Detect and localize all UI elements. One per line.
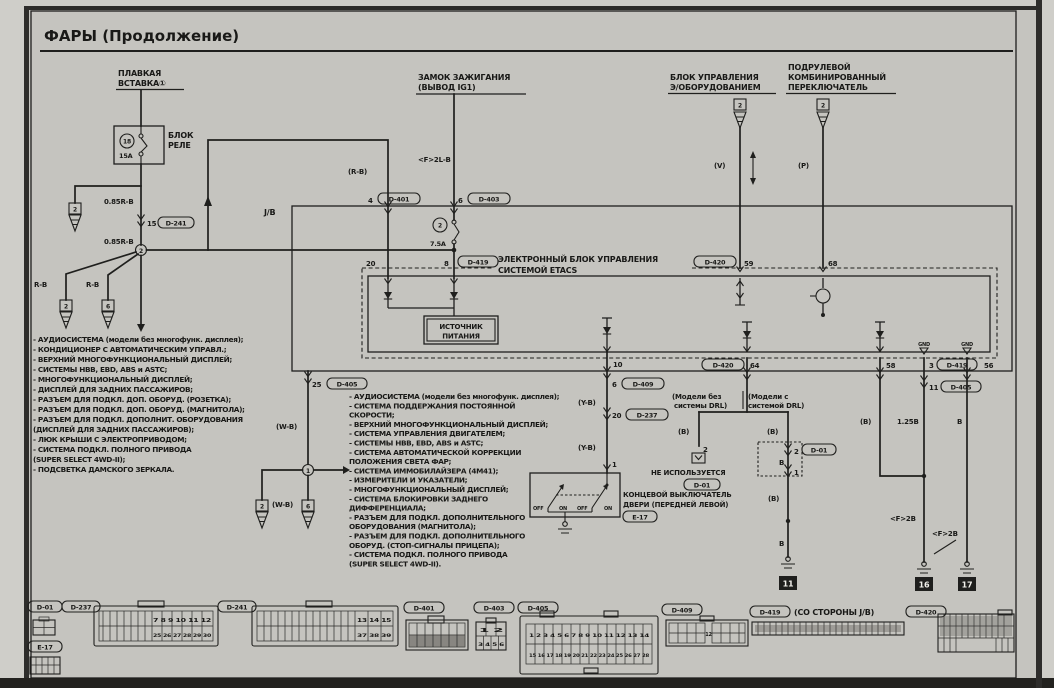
list-item: - СИСТЕМА БЛОКИРОВКИ ЗАДНЕГО	[349, 494, 488, 503]
pin-6: 6	[458, 197, 463, 205]
column-switch-pin-square: 2	[821, 103, 825, 110]
pin-64: 64	[750, 362, 760, 370]
svg-text:2: 2	[260, 504, 264, 511]
pin-25: 25	[312, 381, 322, 389]
wire-label-125b: 1.25B	[897, 418, 919, 426]
pin-68: 68	[828, 260, 838, 268]
gnd-label-1: GND	[918, 342, 930, 348]
svg-text:D-01: D-01	[37, 604, 54, 612]
list-item: - РАЗЪЕМ ДЛЯ ПОДКЛ. ДОПОЛНИТЕЛЬНОГО	[349, 532, 525, 541]
list-item: - СИСТЕМА ПОДДЕРЖАНИЯ ПОСТОЯННОЙ	[349, 401, 515, 410]
pin-8: 8	[444, 260, 449, 268]
svg-text:D-405: D-405	[337, 381, 358, 389]
fusible-link-label-2: ВСТАВКА①	[118, 79, 166, 88]
svg-text:D-420: D-420	[713, 362, 734, 370]
list-item: - СИСТЕМА ПОДКЛ. ПОЛНОГО ПРИВОДА	[349, 550, 508, 559]
relay-box-label-1: БЛОК	[168, 131, 194, 140]
power-source-label-1: ИСТОЧНИК	[439, 323, 483, 331]
pin-row: 12	[705, 632, 712, 638]
list-item: - ВЕРХНИЙ МНОГОФУНКЦИОНАЛЬНЫЙ ДИСПЛЕЙ;	[33, 355, 232, 364]
svg-text:D-01: D-01	[811, 447, 828, 455]
svg-text:D-403: D-403	[484, 605, 505, 613]
power-source-label-2: ПИТАНИЯ	[442, 333, 480, 341]
list-item: ПОЛОЖЕНИЯ СВЕТА ФАР;	[349, 457, 452, 466]
svg-text:D-405: D-405	[951, 384, 972, 392]
ground-11-number: 11	[783, 580, 794, 589]
jb-label: J/B	[263, 208, 275, 217]
list-item: (ДИСПЛЕЙ ДЛЯ ЗАДНИХ ПАССАЖИРОВ);	[33, 425, 194, 434]
wire-label-b-2: (B)	[767, 428, 778, 436]
svg-text:D-241: D-241	[227, 604, 248, 612]
list-item: - СИСТЕМА ИММОБИЛАЙЗЕРА (4M41);	[349, 466, 498, 475]
column-switch-label-3: ПЕРЕКЛЮЧАТЕЛЬ	[788, 83, 868, 92]
svg-text:E-17: E-17	[632, 514, 647, 522]
fuse-18-rating: 15A	[119, 152, 133, 160]
svg-text:D-403: D-403	[479, 196, 500, 204]
list-item: - КОНДИЦИОНЕР С АВТОМАТИЧЕСКИМ УПРАВЛ.;	[33, 345, 227, 354]
ground-17-number: 17	[962, 581, 973, 590]
list-item: - АУДИОСИСТЕМА (модели без многофунк. ди…	[33, 335, 244, 344]
wire-label-b-5: B	[779, 540, 784, 548]
page-edge-bottom	[0, 678, 1054, 688]
wire-label-p: (P)	[798, 162, 809, 170]
etacs-label-2: СИСТЕМОЙ ETACS	[498, 264, 578, 275]
svg-text:D-419: D-419	[947, 362, 968, 370]
list-item: - ЛЮК КРЫШИ С ЭЛЕКТРОПРИВОДОМ;	[33, 435, 187, 444]
junction-dot	[786, 519, 790, 523]
wire-label-b-56: B	[957, 418, 962, 426]
junction-dot	[922, 474, 926, 478]
pin-row: 1 2 3 4 5 6 7 8 9 10 11 12 13 14	[529, 633, 649, 639]
page-edge-right	[1036, 0, 1042, 688]
svg-text:D-420: D-420	[916, 609, 937, 617]
list-item: - МНОГОФУНКЦИОНАЛЬНЫЙ ДИСПЛЕЙ;	[349, 485, 509, 494]
list-item: - РАЗЪЕМ ДЛЯ ПОДКЛ. ДОП. ОБОРУД. (РОЗЕТК…	[33, 395, 231, 404]
list-item: - СИСТЕМА АВТОМАТИЧЕСКОЙ КОРРЕКЦИИ	[349, 448, 521, 457]
list-item: (SUPER SELECT 4WD-II);	[33, 455, 126, 464]
list-item: - СИСТЕМЫ HBB, EBD, ABS и ASTC;	[33, 365, 168, 374]
list-item: - СИСТЕМА УПРАВЛЕНИЯ ДВИГАТЕЛЕМ;	[349, 429, 505, 438]
pin-4: 4	[368, 197, 373, 205]
wire-label-yb-1: (Y-B)	[578, 399, 596, 407]
pin-59: 59	[744, 260, 754, 268]
svg-text:D-237: D-237	[637, 412, 658, 420]
list-item: - РАЗЪЕМ ДЛЯ ПОДКЛ. ДОП. ОБОРУД. (МАГНИТ…	[33, 405, 245, 414]
wire-label-b-3: B	[779, 459, 784, 467]
svg-text:D-237: D-237	[71, 604, 92, 612]
pin-row: 3 4 5 6	[478, 642, 504, 648]
list-item: ДИФФЕРЕНЦИАЛА;	[349, 504, 426, 513]
svg-text:D-409: D-409	[672, 607, 693, 615]
list-item: - ДИСПЛЕЙ ДЛЯ ЗАДНИХ ПАССАЖИРОВ;	[33, 385, 193, 394]
pin-20-d237: 20	[612, 412, 622, 420]
pin-row: 13 14 15	[357, 618, 392, 624]
door-switch-label-2: ДВЕРИ (ПЕРЕДНЕЙ ЛЕВОЙ)	[623, 500, 728, 509]
switch-on-label: ON	[559, 506, 567, 512]
page-title: ФАРЫ (Продолжение)	[44, 27, 239, 45]
pin-2-d01: 2	[794, 448, 799, 456]
svg-text:2: 2	[64, 304, 68, 311]
ignition-label-1: ЗАМОК ЗАЖИГАНИЯ	[418, 73, 510, 82]
connector-2-square: 2	[73, 207, 77, 214]
wiring-diagram: ФАРЫ (Продолжение) ПЛАВКАЯ ВСТАВКА① 18 1…	[0, 0, 1054, 688]
wire-label-085rb-1: 0.85R-B	[104, 198, 134, 206]
svg-text:D-01: D-01	[694, 482, 711, 490]
drl-without-label-2: системы DRL)	[674, 402, 727, 410]
list-item: (SUPER SELECT 4WD-II).	[349, 559, 442, 568]
wire-label-b-58: (B)	[860, 418, 871, 426]
ecu-label-1: БЛОК УПРАВЛЕНИЯ	[670, 73, 759, 82]
pin-row: 15 16 17 18 19 20 21 22 23 24 25 26 27 2…	[529, 653, 649, 659]
list-item: СКОРОСТИ;	[349, 411, 395, 420]
junction-2-number: 2	[139, 248, 143, 255]
relay-box-label-2: РЕЛЕ	[168, 141, 191, 150]
pin-row: 1 2	[479, 628, 505, 634]
list-item: - ВЕРХНИЙ МНОГОФУНКЦИОНАЛЬНЫЙ ДИСПЛЕЙ;	[349, 420, 548, 429]
ignition-label-2: (ВЫВОД IG1)	[418, 83, 475, 92]
pin-11-d405: 11	[929, 384, 939, 392]
pin-58: 58	[886, 362, 896, 370]
pin-3: 3	[929, 362, 934, 370]
list-item: - СИСТЕМА ПОДКЛ. ПОЛНОГО ПРИВОДА	[33, 445, 192, 454]
wire-label-wb-1: (W-B)	[276, 423, 297, 431]
page-edge-top	[24, 6, 1042, 10]
wire-label-b-1: (B)	[678, 428, 689, 436]
fuse-2-number: 2	[438, 223, 442, 230]
wire-label-yb-2: (Y-B)	[578, 444, 596, 452]
wire-label-rb-1: R-B	[34, 281, 47, 289]
ecu-pin-square: 2	[738, 103, 742, 110]
list-item: - ПОДСВЕТКА ДАМСКОГО ЗЕРКАЛА.	[33, 465, 175, 474]
switch-on-label: ON	[604, 506, 612, 512]
wire-label-2lb: <F>2L-B	[418, 156, 451, 164]
fuse-18-number: 18	[123, 139, 131, 146]
svg-text:D-401: D-401	[414, 605, 435, 613]
fuse-2-rating: 7.5A	[430, 240, 446, 248]
svg-text:6: 6	[306, 504, 310, 511]
page-frame	[0, 0, 1054, 688]
list-item: - АУДИОСИСТЕМА (модели без многофунк. ди…	[349, 392, 560, 401]
pin-56: 56	[984, 362, 994, 370]
switch-off-label: OFF	[577, 506, 587, 512]
list-item: - РАЗЪЕМ ДЛЯ ПОДКЛ. ДОПОЛНИТ. ОБОРУДОВАН…	[33, 415, 243, 424]
list-item: - ИЗМЕРИТЕЛИ И УКАЗАТЕЛИ;	[349, 476, 468, 485]
wire-label-b-4: (B)	[768, 495, 779, 503]
svg-text:D-401: D-401	[389, 196, 410, 204]
ground-16-number: 16	[919, 581, 930, 590]
column-switch-label-2: КОМБИНИРОВАННЫЙ	[788, 71, 886, 82]
wire-label-v: (V)	[714, 162, 725, 170]
pin-row: 25 26 27 28 29 30	[153, 633, 211, 639]
pin-10: 10	[613, 361, 623, 369]
gnd-label-2: GND	[961, 342, 973, 348]
svg-text:E-17: E-17	[37, 644, 52, 652]
svg-text:D-419: D-419	[468, 259, 489, 267]
junction-1-number: 1	[306, 468, 310, 475]
fusible-link-label-1: ПЛАВКАЯ	[118, 69, 161, 78]
wire-label-085rb-2: 0.85R-B	[104, 238, 134, 246]
drl-without-label-1: (Модели без	[672, 393, 721, 401]
drl-with-label-1: (Модели с	[748, 393, 788, 401]
svg-text:D-420: D-420	[705, 259, 726, 267]
svg-text:6: 6	[106, 304, 110, 311]
pin-1-door: 1	[612, 461, 617, 469]
switch-off-label: OFF	[533, 506, 543, 512]
pin-15: 15	[147, 220, 157, 228]
drl-with-label-2: системой DRL)	[748, 402, 804, 410]
wire-label-wb-2: (W-B)	[272, 501, 293, 509]
wire-label-f2b-2: <F>2B	[932, 530, 958, 538]
list-item: - МНОГОФУНКЦИОНАЛЬНЫЙ ДИСПЛЕЙ;	[33, 375, 193, 384]
list-item: ОБОРУДОВАНИЯ (МАГНИТОЛА);	[349, 522, 476, 531]
list-item: ОБОРУД. (СТОП-СИГНАЛЫ ПРИЦЕПА);	[349, 541, 500, 550]
wire-label-f2b-1: <F>2B	[890, 515, 916, 523]
d419-note: (СО СТОРОНЫ J/B)	[794, 608, 874, 617]
column-switch-label-1: ПОДРУЛЕВОЙ	[788, 61, 850, 72]
not-used-label: НЕ ИСПОЛЬЗУЕТСЯ	[651, 469, 726, 477]
pin-6-d409: 6	[612, 381, 617, 389]
list-item: - СИСТЕМЫ HBB, EBD, ABS и ASTC;	[349, 439, 484, 448]
wire-label-rb-paren: (R-B)	[348, 168, 367, 176]
pin-row: 7 8 9 10 11 12	[153, 618, 212, 624]
pin-20: 20	[366, 260, 376, 268]
pin-1-d01: 1	[794, 469, 799, 477]
svg-text:D-409: D-409	[633, 381, 654, 389]
svg-text:D-419: D-419	[760, 609, 781, 617]
wire-label-rb-2: R-B	[86, 281, 99, 289]
ecu-label-2: Э/ОБОРУДОВАНИЕМ	[670, 83, 761, 92]
door-switch-label-1: КОНЦЕВОЙ ВЫКЛЮЧАТЕЛЬ	[623, 490, 732, 499]
svg-text:D-241: D-241	[166, 220, 187, 228]
list-item: - РАЗЪЕМ ДЛЯ ПОДКЛ. ДОПОЛНИТЕЛЬНОГО	[349, 513, 525, 522]
page-edge-left	[24, 6, 29, 682]
etacs-label-1: ЭЛЕКТРОННЫЙ БЛОК УПРАВЛЕНИЯ	[498, 253, 658, 264]
pin-row: 37 38 39	[357, 633, 391, 639]
